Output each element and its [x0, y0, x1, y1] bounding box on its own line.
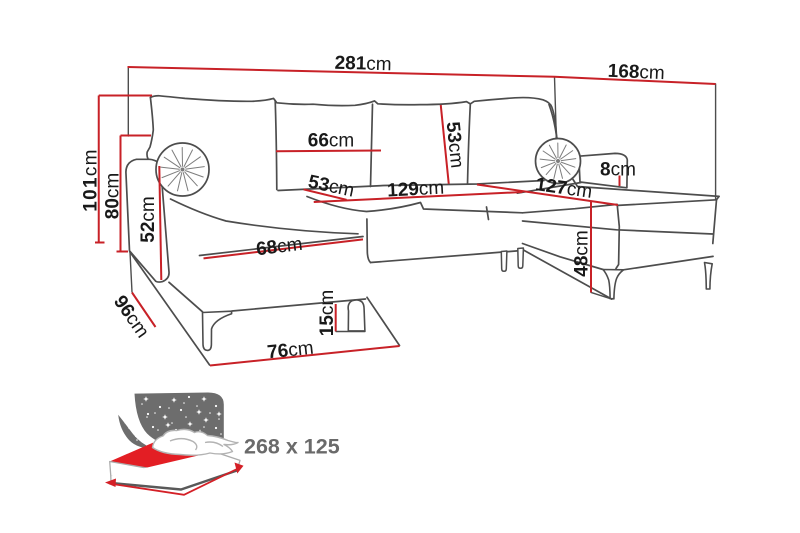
- svg-text:168cm: 168cm: [607, 61, 665, 84]
- svg-text:66cm: 66cm: [308, 131, 354, 152]
- svg-text:8cm: 8cm: [600, 160, 636, 181]
- svg-text:268 x 125: 268 x 125: [244, 435, 340, 459]
- svg-text:48cm: 48cm: [572, 230, 593, 276]
- svg-text:52cm: 52cm: [138, 196, 159, 242]
- svg-text:80cm: 80cm: [103, 173, 124, 219]
- svg-text:129cm: 129cm: [387, 178, 445, 202]
- svg-text:281cm: 281cm: [334, 53, 392, 75]
- svg-text:15cm: 15cm: [317, 290, 338, 336]
- svg-text:101cm: 101cm: [81, 148, 102, 212]
